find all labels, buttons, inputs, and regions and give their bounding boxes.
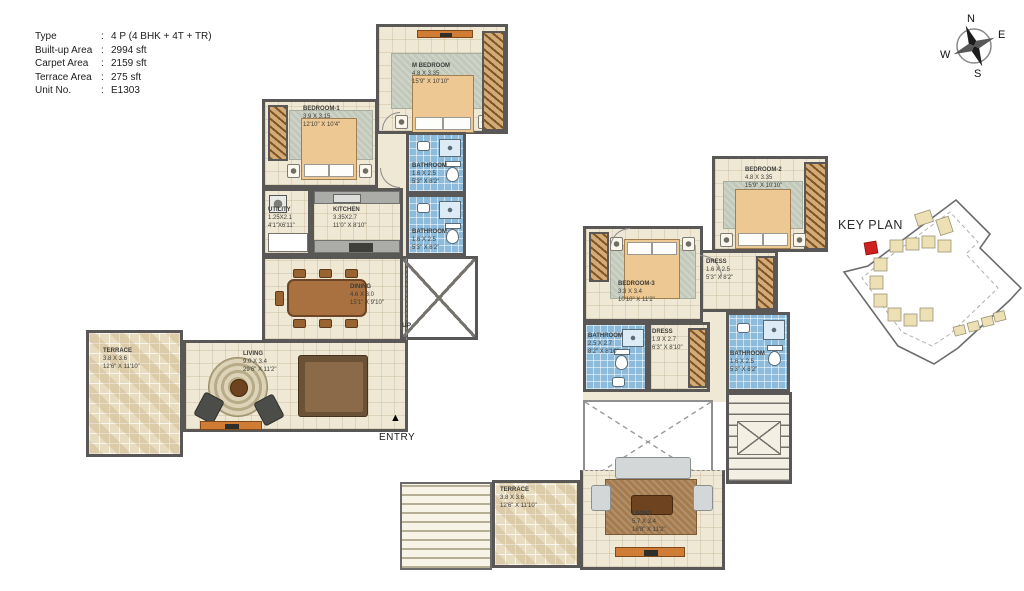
- nightstand: [287, 164, 300, 178]
- key-plan-highlight-unit: [864, 241, 878, 255]
- storage-crate: [268, 233, 308, 252]
- armchair: [693, 485, 713, 511]
- room-label-terrace-upper: TERRACE3.8 X 3.612'6" X 11'10": [500, 486, 537, 510]
- staircase-lower: [400, 256, 478, 340]
- room-living: [183, 340, 408, 432]
- key-plan-title: KEY PLAN: [838, 218, 903, 232]
- nightstand: [682, 237, 695, 251]
- room-bedroom-3: [583, 226, 703, 322]
- room-label-m-bedroom: M BEDROOM4.8 X 3.3515'9" X 10'10": [412, 62, 450, 86]
- room-label-bathroom-3: BATHROOM1.6 X 2.55'3" X 8'2": [730, 350, 765, 374]
- room-label-bedroom-3: BEDROOM-33.3 X 3.410'10" X 11'2": [618, 280, 655, 304]
- kitchen-counter: [314, 240, 400, 253]
- wardrobe: [589, 232, 609, 282]
- compass-rose-icon: N E W S: [938, 8, 1010, 80]
- shower: [439, 139, 461, 157]
- kitchen-counter: [314, 191, 400, 204]
- room-label-bathroom-2: BATHROOM1.6 X 2.55'3" X 8'2": [412, 228, 447, 252]
- toilet: [446, 229, 459, 244]
- up-label: UP: [402, 322, 411, 329]
- room-label-dining: DINING4.6 X 3.015'1" X 9'10": [350, 283, 384, 307]
- room-label-dress-3: DRESS1.9 X 2.76'3" X 8'10": [652, 328, 683, 352]
- info-row-builtup: Built-up Area:2994 sft: [35, 44, 212, 58]
- wardrobe: [756, 256, 775, 310]
- washbasin: [737, 323, 750, 333]
- info-row-type: Type:4 P (4 BHK + 4T + TR): [35, 30, 212, 44]
- washbasin: [417, 141, 430, 151]
- info-panel: Type:4 P (4 BHK + 4T + TR) Built-up Area…: [35, 30, 212, 98]
- dining-chair: [275, 291, 284, 306]
- pergola-deck: [400, 482, 492, 570]
- room-label-living-lower: LIVING9.0 X 3.429'6" X 11'2": [243, 350, 276, 374]
- hob: [349, 243, 373, 252]
- armchair: [591, 485, 611, 511]
- shower: [439, 201, 461, 219]
- dining-chair: [345, 269, 358, 278]
- room-label-bedroom-1: BEDROOM-13.9 X 3.1512'10" X 10'4": [303, 105, 340, 129]
- toilet: [768, 351, 781, 366]
- room-label-living-upper: LIVING5.7 X 3.418'8" X 11'2": [632, 510, 665, 534]
- dining-chair: [319, 269, 332, 278]
- tv-console: [417, 30, 473, 38]
- room-label-bathroom-1: BATHROOM1.6 X 2.55'3" X 8'2": [412, 162, 447, 186]
- washbasin: [612, 377, 625, 387]
- nightstand: [359, 164, 372, 178]
- wardrobe: [688, 328, 707, 388]
- nightstand: [793, 233, 806, 247]
- svg-text:S: S: [974, 68, 981, 80]
- sofa: [298, 355, 368, 417]
- bed: [735, 189, 791, 249]
- svg-text:E: E: [998, 29, 1005, 41]
- room-label-bedroom-2: BEDROOM-24.8 X 3.3515'9" X 10'10": [745, 166, 782, 190]
- coffee-table: [230, 379, 248, 397]
- washbasin: [417, 203, 430, 213]
- entry-label: ENTRY: [379, 432, 415, 443]
- sofa: [615, 457, 691, 479]
- toilet: [446, 167, 459, 182]
- room-label-bathroom-4: BATHROOM2.5 X 2.78'2" X 8'10": [588, 332, 623, 356]
- room-label-utility: UTILITY1.25X2.14'1"X6'11": [268, 206, 295, 230]
- dining-chair: [293, 319, 306, 328]
- wardrobe: [268, 105, 288, 161]
- staircase-upper: [726, 392, 792, 484]
- nightstand: [720, 233, 733, 247]
- dining-chair: [293, 269, 306, 278]
- entry-arrow-icon: ▲: [390, 412, 401, 424]
- info-row-unit: Unit No.:E1303: [35, 84, 212, 98]
- room-label-terrace-lower: TERRACE3.8 X 3.612'6" X 11'10": [103, 347, 140, 371]
- dining-chair: [345, 319, 358, 328]
- shower: [763, 320, 785, 340]
- wardrobe: [482, 31, 505, 131]
- tv-console: [200, 421, 262, 430]
- dining-chair: [319, 319, 332, 328]
- toilet: [615, 355, 628, 370]
- shower: [622, 329, 644, 347]
- tv-console: [615, 547, 685, 557]
- svg-text:W: W: [940, 49, 951, 61]
- info-row-carpet: Carpet Area:2159 sft: [35, 57, 212, 71]
- svg-text:N: N: [967, 13, 975, 25]
- room-label-dress-2: DRESS1.6 X 2.55'3" X 8'2": [706, 258, 733, 282]
- room-dining: [262, 256, 408, 342]
- floorplan-canvas: Type:4 P (4 BHK + 4T + TR) Built-up Area…: [0, 0, 1024, 591]
- info-row-terrace: Terrace Area:275 sft: [35, 71, 212, 85]
- wardrobe: [804, 162, 827, 250]
- stair-landing: [737, 421, 781, 455]
- room-label-kitchen: KITCHEN3.35X2.711'0" X 8'10": [333, 206, 366, 230]
- kitchen-sink: [333, 194, 361, 203]
